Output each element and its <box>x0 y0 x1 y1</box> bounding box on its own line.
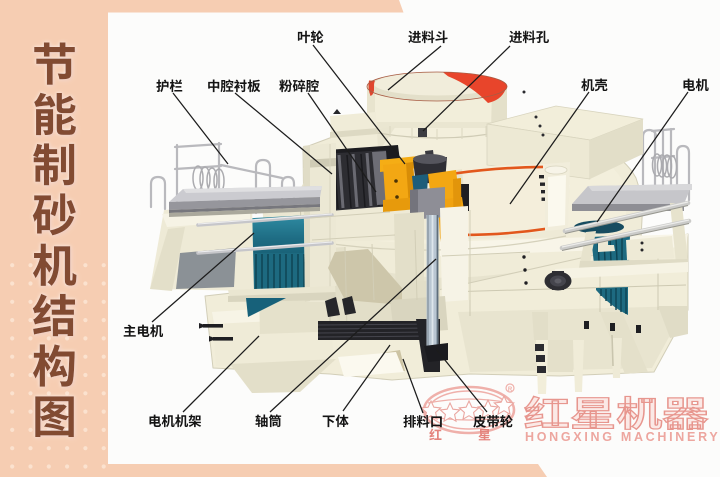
svg-text:R: R <box>508 387 513 393</box>
svg-text:HONGXING MACHINERY: HONGXING MACHINERY <box>525 430 720 444</box>
